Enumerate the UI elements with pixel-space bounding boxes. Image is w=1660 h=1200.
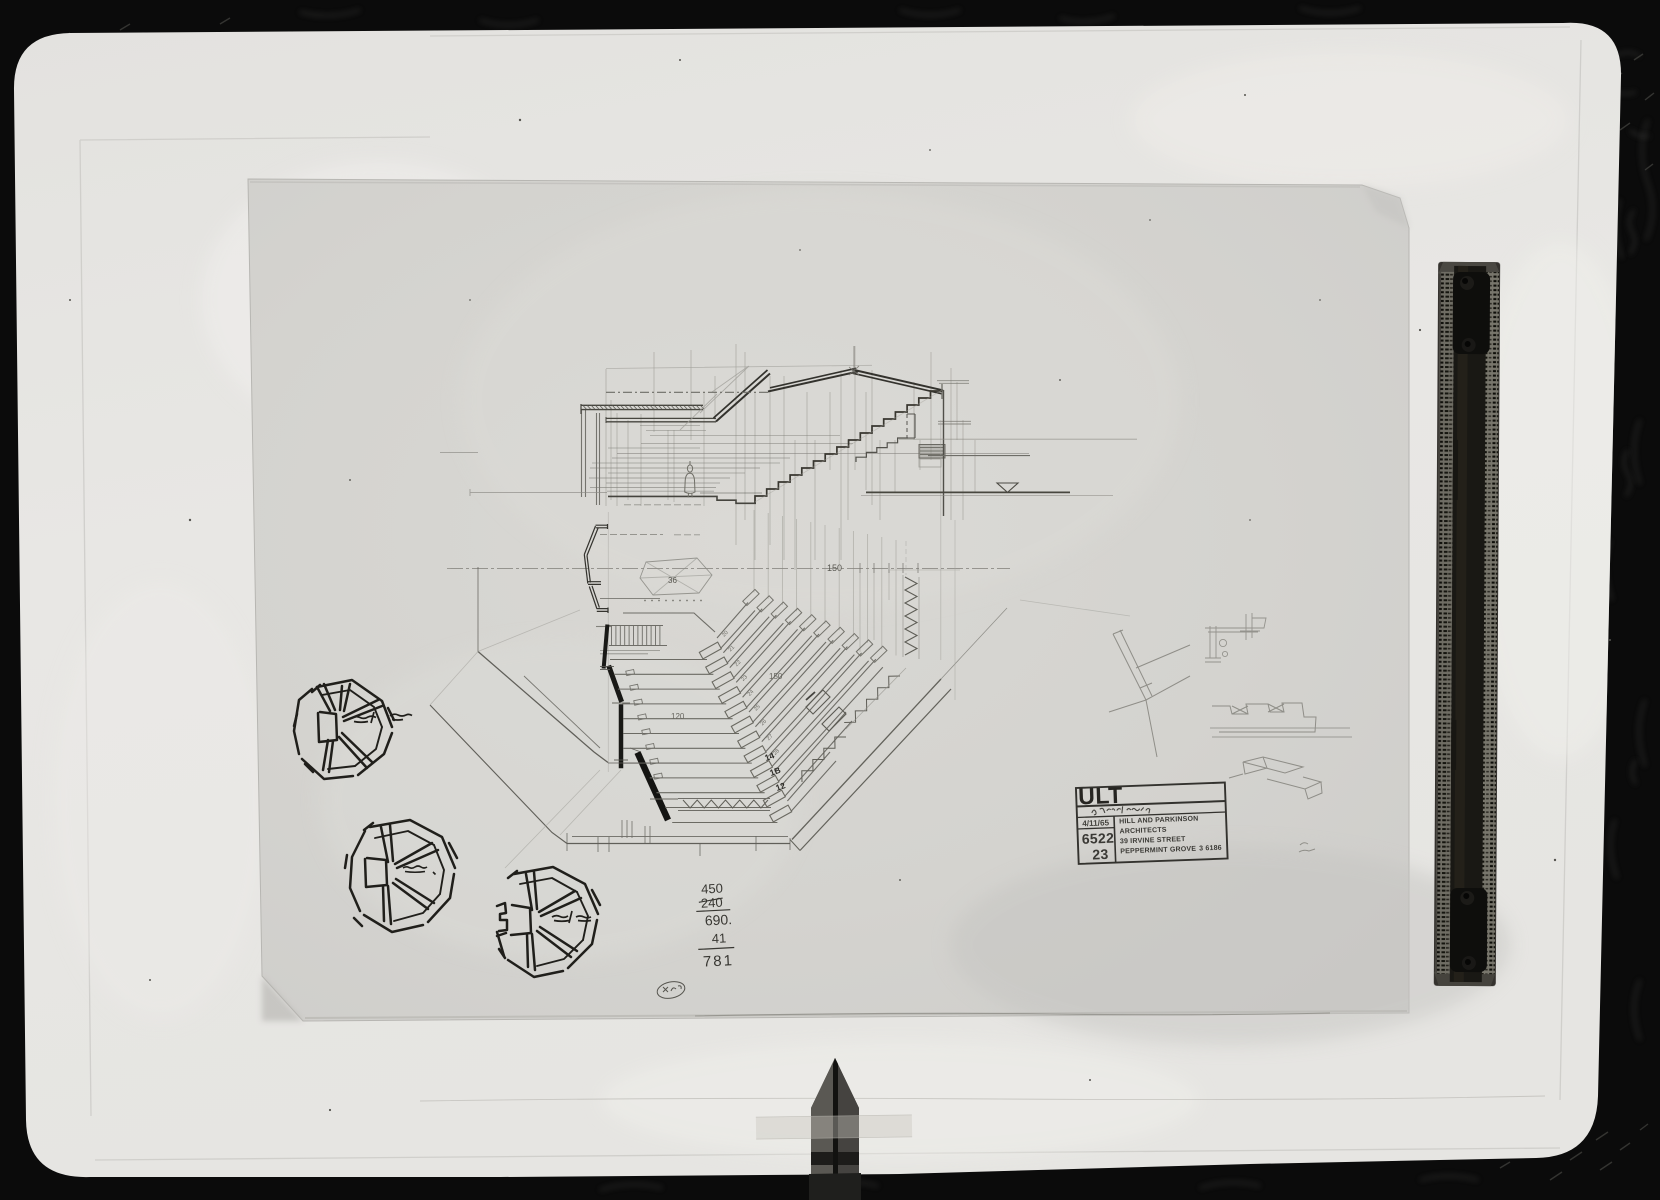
- svg-text:23: 23: [1092, 846, 1109, 863]
- svg-text:6522: 6522: [1081, 830, 1114, 847]
- svg-text:4/11/65: 4/11/65: [1082, 818, 1110, 828]
- svg-text:41: 41: [711, 930, 726, 946]
- svg-text:150: 150: [769, 672, 783, 681]
- svg-text:ULT: ULT: [1078, 782, 1123, 810]
- svg-text:150: 150: [827, 563, 842, 573]
- svg-text:240: 240: [701, 895, 723, 911]
- svg-text:36: 36: [668, 576, 677, 585]
- svg-text:690.: 690.: [704, 911, 732, 928]
- svg-text:120: 120: [671, 712, 685, 721]
- svg-text:3 6186: 3 6186: [1199, 845, 1222, 853]
- svg-text:781: 781: [703, 952, 735, 971]
